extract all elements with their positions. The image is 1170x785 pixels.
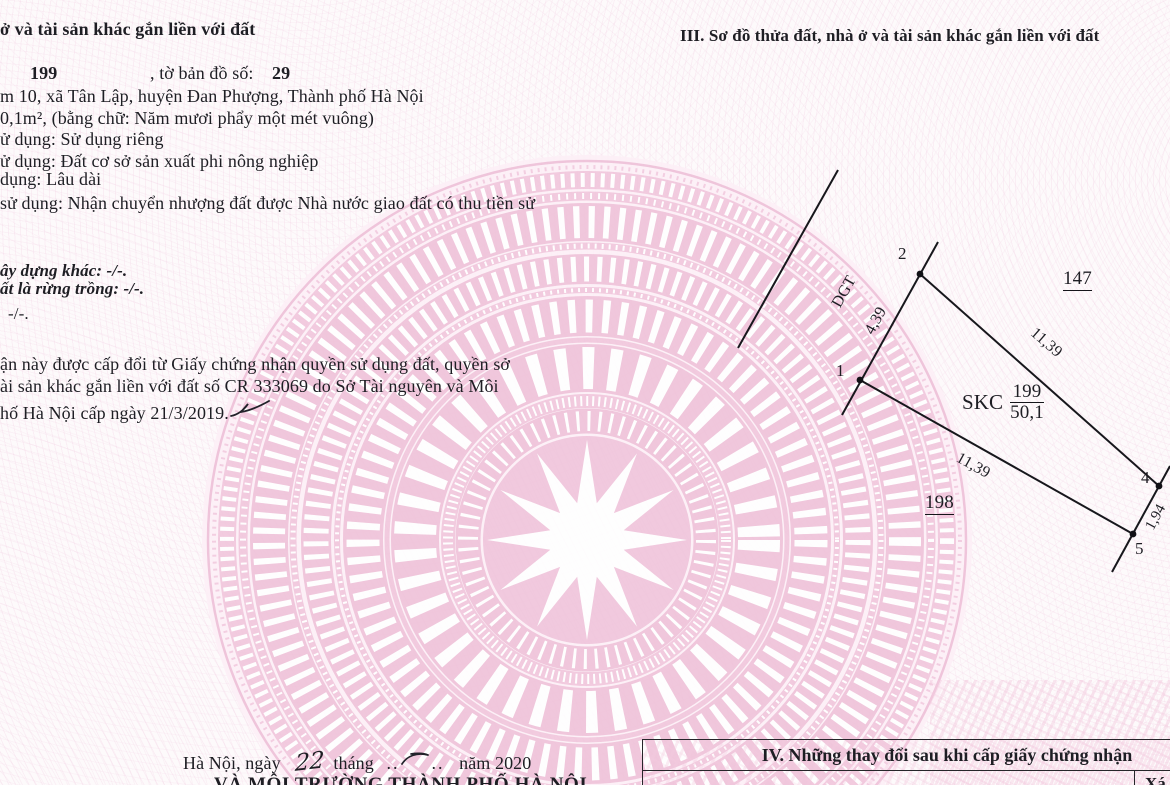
- parcel-annotation: SKC 199 50,1: [962, 382, 1044, 423]
- parcel-fraction: 199 50,1: [1010, 382, 1044, 423]
- address-line: m 10, xã Tân Lập, huyện Đan Phượng, Thàn…: [0, 86, 424, 107]
- dash-line: -/-.: [8, 304, 29, 324]
- section4-column-divider: [1134, 771, 1135, 785]
- vertex-label-2: 2: [898, 244, 907, 264]
- certificate-page: III. Sơ đồ thửa đất, nhà ở và tài sản kh…: [0, 0, 1170, 785]
- vertex-label-4: 4: [1141, 468, 1150, 488]
- map-sheet-label: , tờ bản đồ số:: [150, 63, 254, 84]
- signer-title-clipped: VÀ MÔI TRƯỜNG THÀNH PHỐ HÀ NỘI: [214, 774, 587, 785]
- other-construction-line: ây dựng khác: -/-.: [0, 261, 127, 281]
- handwritten-month-icon: [399, 751, 431, 769]
- parcel-code: SKC: [962, 390, 1003, 415]
- date-dots-left: ..: [386, 753, 399, 773]
- note-line-2: ài sản khác gắn liền với đất số CR 33306…: [0, 376, 499, 397]
- pen-flourish-icon: [229, 399, 271, 419]
- road-edge-line: [738, 170, 838, 348]
- parcel-number: 199: [30, 63, 57, 84]
- vertex-label-1: 1: [836, 361, 845, 381]
- date-prefix: Hà Nội, ngày: [183, 753, 281, 773]
- section4-title: IV. Những thay đổi sau khi cấp giấy chứn…: [762, 745, 1132, 766]
- area-line: 0,1m², (bằng chữ: Năm mươi phẩy một mét …: [0, 108, 374, 129]
- neighbor-parcel-198: 198: [925, 492, 954, 515]
- handwritten-day: 22: [295, 749, 325, 776]
- section-header-fragment: ở và tài sản khác gắn liền với đất: [0, 19, 255, 40]
- parcel-area-bottom: 50,1: [1010, 403, 1044, 423]
- parcel-number-top: 199: [1010, 382, 1044, 403]
- note-line-3-wrap: hố Hà Nội cấp ngày 21/3/2019.: [0, 399, 271, 424]
- usage-origin-line: sử dụng: Nhận chuyển nhượng đất được Nhà…: [0, 193, 535, 214]
- date-suffix: năm 2020: [459, 753, 531, 773]
- date-dots-right: ..: [431, 753, 444, 773]
- neighbor-parcel-147: 147: [1063, 268, 1092, 291]
- section4-body-row: Xá: [643, 771, 1170, 785]
- vertex-label-5: 5: [1135, 539, 1144, 559]
- usage-term-line: dụng: Lâu dài: [0, 169, 101, 190]
- map-sheet-number: 29: [272, 63, 290, 84]
- section4-col2-fragment: Xá: [1145, 774, 1166, 785]
- date-line: Hà Nội, ngày 22 tháng .... năm 2020: [183, 751, 531, 774]
- usage-form-line: ử dụng: Sử dụng riêng: [0, 129, 164, 150]
- date-month-label: tháng: [333, 753, 374, 773]
- section3-title: III. Sơ đồ thửa đất, nhà ở và tài sản kh…: [680, 26, 1099, 46]
- section4-header-row: IV. Những thay đổi sau khi cấp giấy chứn…: [643, 740, 1170, 771]
- forest-line: ất là rừng trồng: -/-.: [0, 279, 144, 299]
- note-line-1: ận này được cấp đổi từ Giấy chứng nhận q…: [0, 354, 510, 375]
- note-line-3: hố Hà Nội cấp ngày 21/3/2019.: [0, 403, 229, 423]
- section4-table: IV. Những thay đổi sau khi cấp giấy chứn…: [642, 739, 1170, 785]
